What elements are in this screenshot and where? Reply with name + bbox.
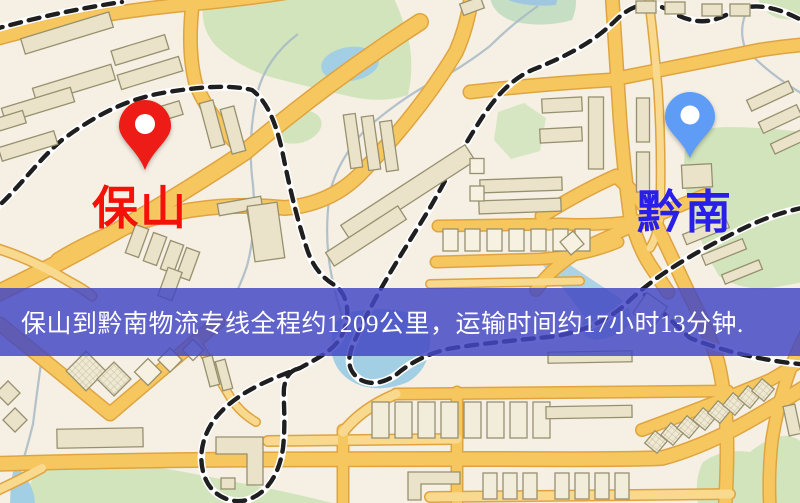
map-canvas[interactable]	[0, 0, 800, 503]
blue-pin-icon	[660, 88, 720, 160]
red-pin-icon	[113, 96, 177, 172]
origin-label: 保山	[92, 172, 188, 238]
map-screenshot: 保山到黔南物流专线全程约1209公里，运输时间约17小时13分钟. 保山 黔南	[0, 0, 800, 503]
destination-label: 黔南	[637, 176, 733, 242]
route-info-text: 保山到黔南物流专线全程约1209公里，运输时间约17小时13分钟.	[0, 304, 744, 340]
route-info-banner: 保山到黔南物流专线全程约1209公里，运输时间约17小时13分钟.	[0, 288, 800, 356]
